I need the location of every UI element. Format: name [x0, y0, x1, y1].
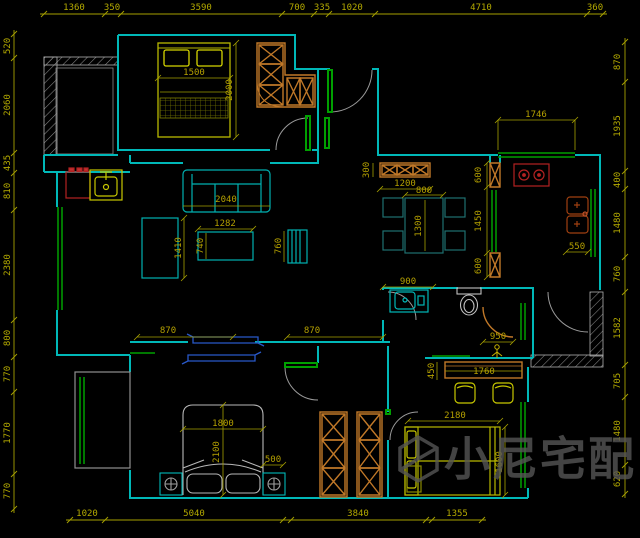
floor-plan-drawing: 1360 350 3590 700 335 1020 4710 360 520 … — [0, 0, 640, 538]
dim-right-3: 1480 — [613, 212, 623, 234]
dim-shoe-cabinet-width: 1200 — [394, 179, 416, 189]
dim-left-6: 770 — [3, 366, 13, 382]
toilet — [457, 288, 481, 315]
laundry-sink — [90, 170, 122, 200]
dim-top-4: 335 — [314, 3, 330, 13]
shoe-cabinet — [380, 163, 430, 177]
dim-dining-length: 1300 — [414, 215, 424, 237]
dim-top-5: 1020 — [341, 3, 363, 13]
dim-bed1-width: 1500 — [183, 68, 205, 78]
dim-top-7: 360 — [587, 3, 603, 13]
masonry-walls — [44, 57, 603, 367]
dim-top-2: 3590 — [190, 3, 212, 13]
dim-corridor-right: 870 — [304, 326, 320, 336]
dim-left-8: 770 — [3, 483, 13, 499]
tv-cabinet — [142, 218, 178, 278]
dim-kitchen-door-top: 600 — [474, 167, 484, 183]
dim-left-7: 1770 — [3, 422, 13, 444]
dim-kitchen-door-bottom: 600 — [474, 258, 484, 274]
sliding-door — [182, 334, 264, 364]
dim-desk-depth: 450 — [427, 363, 437, 379]
dim-left-4: 2380 — [3, 254, 13, 276]
dim-desk-width: 1760 — [473, 367, 495, 377]
dim-bed2-width: 1800 — [212, 419, 234, 429]
dim-bed3-width: 2180 — [444, 411, 466, 421]
dim-top-6: 4710 — [470, 3, 492, 13]
dim-top-3: 700 — [289, 3, 305, 13]
dim-right-1: 1935 — [613, 115, 623, 137]
dim-bed1-length: 2000 — [225, 79, 235, 101]
hall-closets — [320, 412, 382, 497]
dim-bathroom-width: 900 — [400, 277, 416, 287]
bed-master — [158, 43, 230, 137]
dim-top-0: 1360 — [63, 3, 85, 13]
dim-left-1: 2060 — [3, 94, 13, 116]
dim-bathroom-depth: 950 — [490, 332, 506, 342]
dim-kitchen-door-middle: 1450 — [474, 210, 484, 232]
dining-set — [383, 198, 465, 253]
dim-kitchen-sink: 550 — [569, 242, 585, 252]
bathroom — [390, 288, 502, 358]
dim-left-0: 520 — [3, 38, 13, 54]
kitchen — [514, 164, 588, 233]
dim-top-1: 350 — [104, 3, 120, 13]
dim-bed2-length: 2100 — [212, 441, 222, 463]
floor-plan-canvas: 1360 350 3590 700 335 1020 4710 360 520 … — [0, 0, 640, 538]
dim-tv-cabinet: 1410 — [174, 237, 184, 259]
tv-stand — [288, 230, 307, 263]
dim-right-4: 760 — [613, 266, 623, 282]
dimension-labels-top: 1360 350 3590 700 335 1020 4710 360 — [63, 3, 603, 13]
dim-nightstand: 500 — [265, 455, 281, 465]
dim-corridor-left: 870 — [160, 326, 176, 336]
dim-coffee-table-depth: 740 — [196, 238, 206, 254]
dim-left-5: 800 — [3, 330, 13, 346]
dimension-labels-bottom: 1020 5040 3840 1355 — [76, 509, 468, 519]
dim-coffee-table-width: 1282 — [214, 219, 236, 229]
floor-drain-ornament — [492, 345, 502, 358]
dim-right-0: 870 — [613, 54, 623, 70]
watermark: 小尼宅配 — [400, 432, 636, 486]
watermark-text: 小尼宅配 — [444, 432, 636, 486]
dimension-labels-right: 870 1935 400 1480 760 1582 705 1480 620 — [613, 54, 623, 487]
dim-dining-width: 800 — [416, 186, 432, 196]
kitchen-sink — [567, 197, 588, 233]
dim-right-5: 1582 — [613, 317, 623, 339]
dining-table — [405, 198, 443, 253]
dim-left-3: 810 — [3, 183, 13, 199]
dim-bottom-2: 3840 — [347, 509, 369, 519]
dim-left-2: 435 — [3, 155, 13, 171]
dim-right-6: 705 — [613, 373, 623, 389]
dimension-labels-left: 520 2060 435 810 2380 800 770 1770 770 — [3, 38, 13, 499]
dim-bottom-1: 5040 — [183, 509, 205, 519]
stove — [66, 168, 90, 198]
dim-shoe-cabinet-depth: 300 — [362, 162, 372, 178]
dim-bottom-3: 1355 — [446, 509, 468, 519]
dim-right-2: 400 — [613, 172, 623, 188]
dim-bottom-0: 1020 — [76, 509, 98, 519]
dim-entry-window: 1746 — [525, 110, 547, 120]
bay-window — [75, 372, 130, 468]
dim-tv-stand: 760 — [274, 238, 284, 254]
dim-sofa: 2040 — [215, 195, 237, 205]
